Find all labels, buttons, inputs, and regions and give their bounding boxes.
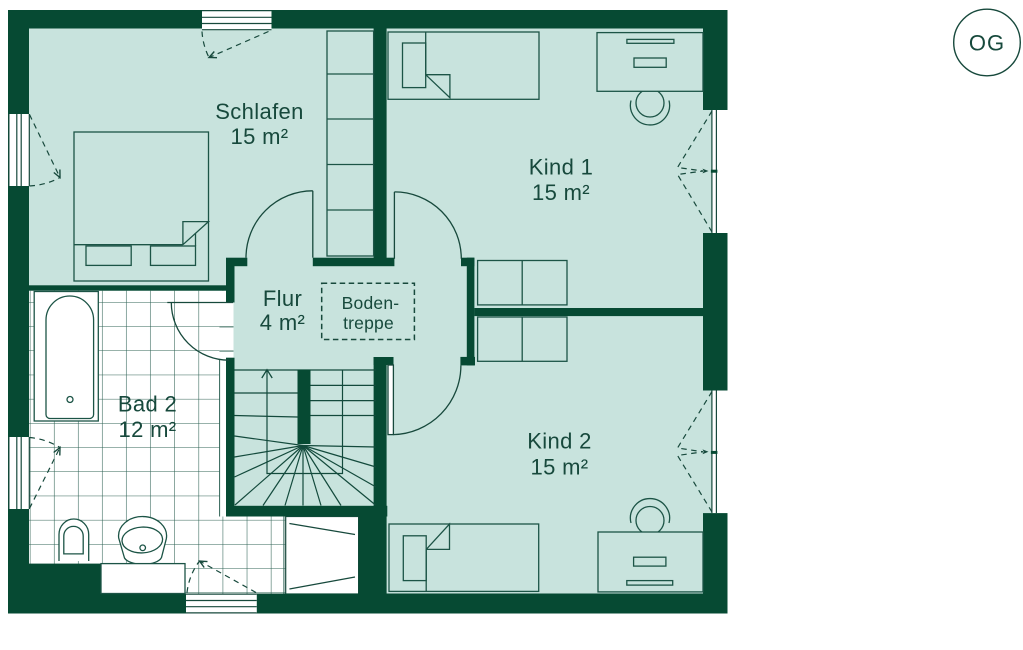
svg-text:12 m²: 12 m² xyxy=(119,417,177,442)
svg-text:15 m²: 15 m² xyxy=(532,180,590,205)
svg-text:15 m²: 15 m² xyxy=(531,455,589,480)
svg-text:Flur: Flur xyxy=(263,286,302,311)
svg-text:Kind 2: Kind 2 xyxy=(527,428,591,453)
svg-text:Boden-: Boden- xyxy=(342,293,400,313)
svg-text:OG: OG xyxy=(969,30,1005,55)
svg-text:15 m²: 15 m² xyxy=(231,124,289,149)
svg-text:Kind 1: Kind 1 xyxy=(529,155,593,180)
svg-text:4 m²: 4 m² xyxy=(260,310,305,335)
svg-text:Schlafen: Schlafen xyxy=(215,99,303,124)
svg-text:Bad 2: Bad 2 xyxy=(118,392,177,417)
svg-text:treppe: treppe xyxy=(343,313,394,333)
